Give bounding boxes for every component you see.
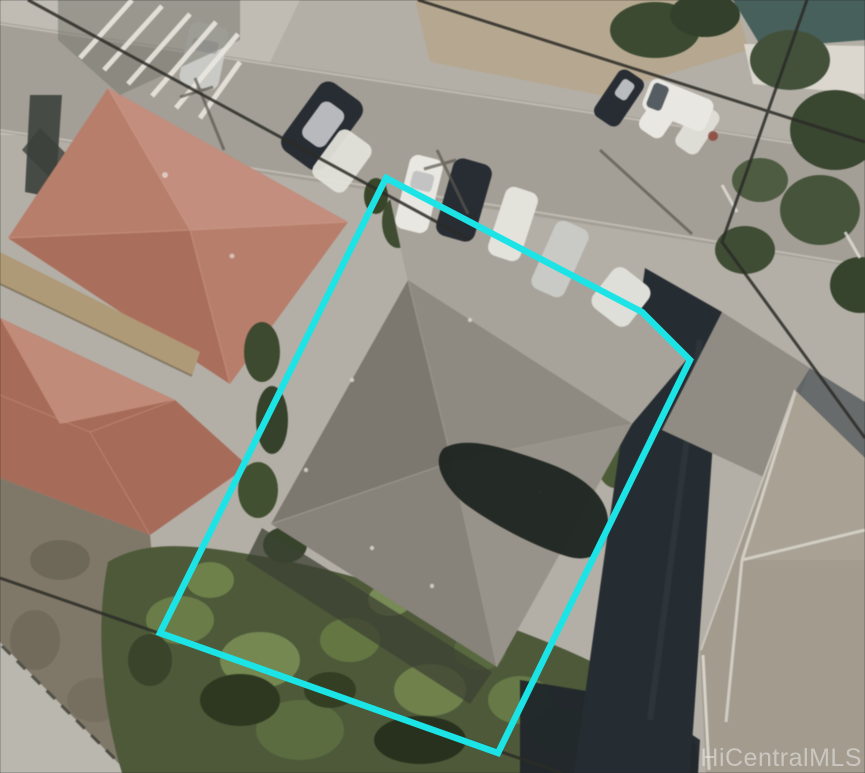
aerial-photo-view: HiCentralMLS — [0, 0, 865, 773]
watermark: HiCentralMLS — [700, 744, 862, 772]
satellite-image: HiCentralMLS — [0, 0, 865, 773]
photo-layers — [0, 0, 865, 773]
red-car-fragment — [708, 131, 718, 141]
